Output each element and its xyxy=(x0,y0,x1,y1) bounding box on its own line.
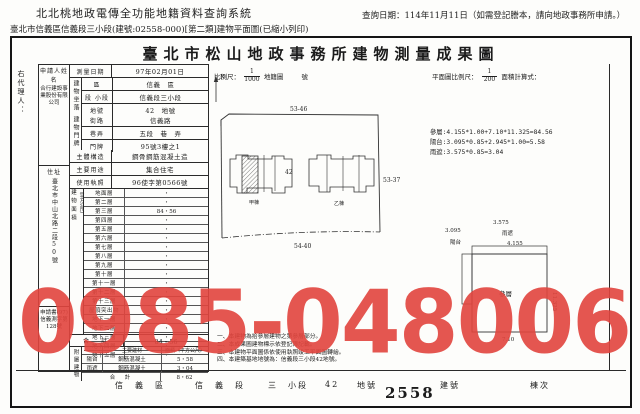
location-group: 建物坐落 區 信義 區 段 小段 信義段三小段 地號 42 地號 xyxy=(70,78,208,114)
footer-divider xyxy=(16,370,626,371)
floor-value: ・ xyxy=(125,315,208,323)
note-line: 二、本成果圖建物標示依登記簿記載。 xyxy=(217,342,602,350)
floor-label: 地下二層 xyxy=(84,324,125,332)
floor-row: 第十二層 ・ xyxy=(84,288,208,297)
footer-section: 信 義 段 xyxy=(195,380,245,391)
attachments-material-header: 主要建材 xyxy=(103,347,162,354)
boundary-bottom-label: 54-40 xyxy=(294,243,311,250)
location-row-label: 段 小段 xyxy=(82,91,113,103)
system-title: 北北桃地政電傳全功能地籍資料查詢系統 xyxy=(36,5,252,21)
floor-rows: 地面層 ・ 第二層 ・ 第三層 84・56 xyxy=(84,189,208,334)
dim-4155: 4.155 xyxy=(507,241,523,247)
usage-label: 主要用途 xyxy=(70,163,112,175)
license-value: 96使字第0566號 xyxy=(112,177,208,187)
parcel-left-edge xyxy=(221,120,222,238)
application-number-cell: 申請書(97)信義測字第128號 xyxy=(39,307,69,371)
floor-row: 地下二層 ・ xyxy=(84,324,208,333)
floor-value: ・ xyxy=(125,198,208,206)
floor-total-row: 合 計 84・56 xyxy=(70,335,208,347)
footer-building-unit: 建號 xyxy=(440,380,460,391)
floor-row: 第十三層 ・ xyxy=(84,297,208,306)
floor-row: 第二層 ・ xyxy=(84,198,208,207)
floor-label: 第十三層 xyxy=(84,297,125,305)
floor-row: 屋頂突出物 ・ xyxy=(84,306,208,315)
floor-total-value: 84・56 xyxy=(124,336,208,346)
canopy-outline xyxy=(472,246,547,254)
dim-3095: 3.095 xyxy=(445,228,461,234)
doorplate-row-label: 街路 xyxy=(82,114,113,126)
attachment-row: 陽台 鋼筋混凝土 5・58 xyxy=(82,355,208,364)
left-building-label: 甲棟 xyxy=(249,199,259,206)
floor-label: 地下一層 xyxy=(84,315,125,323)
address-cell: 住址 臺北市中山北路二段50號 xyxy=(39,166,69,307)
attachments-area-header: 面積（平方公尺） xyxy=(162,347,208,354)
doorplate-row-label: 巷弄 xyxy=(82,127,113,139)
floor-row: 第六層 ・ xyxy=(84,234,208,243)
footer-strip: 信 義 區 信 義 段 三 小段 42 地號 2558 建號 棟次 xyxy=(12,372,630,404)
floor-label: 第四層 xyxy=(84,216,125,224)
footer-district: 信 義 區 xyxy=(115,380,165,391)
floor-label: 地面層 xyxy=(84,189,125,197)
floor-label: 第十二層 xyxy=(84,288,125,296)
footer-parcel-unit: 地號 xyxy=(357,380,377,391)
license-row: 使用執照 96使字第0566號 xyxy=(70,176,208,189)
attachment-area: 5・58 xyxy=(162,355,208,363)
building-info-form: 申請人姓名 合行建設事業股份有限公司 住址 臺北市中山北路二段50號 申請書(9… xyxy=(38,64,209,372)
floor-value: ・ xyxy=(125,216,208,224)
footer-building-number: 2558 xyxy=(385,384,435,402)
footer-subsection: 三 小段 xyxy=(268,380,308,391)
floor-value: ・ xyxy=(125,252,208,260)
floor-value: ・ xyxy=(125,189,208,197)
floor-row: 第十一層 ・ xyxy=(84,279,208,288)
floor-area-axis: 建物面積 （平方公尺） xyxy=(70,189,84,334)
doorplate-row-value: 信義路 xyxy=(113,115,208,125)
location-group-label: 建物坐落 xyxy=(70,78,82,114)
survey-date-label: 測量日期 xyxy=(70,65,112,77)
form-grid: 測量日期 97年02月01日 建物坐落 區 信義 區 段 小段 信義段三小段 xyxy=(70,65,208,371)
footer-unit-label: 棟次 xyxy=(530,380,550,391)
right-divider xyxy=(609,64,610,370)
doorplate-row: 街路 信義路 xyxy=(82,114,208,127)
agent-label: 右代理人： xyxy=(16,70,26,115)
applicant-name: 合行建設事業股份有限公司 xyxy=(40,86,68,107)
dim-3575: 3.575 xyxy=(493,220,509,226)
cadastral-map-and-plan: N 53-46 53-37 54-40 42 甲棟 乙棟 xyxy=(207,64,609,370)
address-value: 臺北市中山北路二段50號 xyxy=(50,178,59,296)
doorplate-group: 建物門牌 街路 信義路 巷弄 五段 巷 弄 門牌 95號3樓之1 xyxy=(70,114,208,150)
balcony-label: 陽台 xyxy=(450,238,462,246)
floor-row: 第四層 ・ xyxy=(84,216,208,225)
floor-label: 第七層 xyxy=(84,243,125,251)
floor-label: 屋頂突出物 xyxy=(84,306,125,314)
floor-area-group-label: 建物面積 xyxy=(69,189,77,334)
application-number: 申請書(97)信義測字第128號 xyxy=(40,310,68,331)
floor-label: 第十一層 xyxy=(84,279,125,287)
usage-row: 主要用途 集合住宅 xyxy=(70,163,208,176)
survey-date-value: 97年02月01日 xyxy=(112,66,208,76)
parcel-bottom-edge xyxy=(222,232,380,238)
floor-label: 第十層 xyxy=(84,270,125,278)
land-registry-print-view: 北北桃地政電傳全功能地籍資料查詢系統 查詢日期：114年11月11日（如需登記謄… xyxy=(0,0,640,414)
floor-value: ・ xyxy=(125,270,208,278)
room-label: 參層 xyxy=(499,289,512,298)
floor-label: 第八層 xyxy=(84,252,125,260)
floor-total-label: 合 計 xyxy=(70,335,124,346)
floor-area-block: 建物面積 （平方公尺） 地面層 ・ 第二層 xyxy=(70,189,208,335)
applicant-label: 申請人姓名 xyxy=(40,66,68,84)
north-arrow-head-icon xyxy=(214,76,218,82)
floor-value: ・ xyxy=(125,288,208,296)
floor-value: 84・56 xyxy=(125,207,208,215)
floor-row: 地面層 ・ xyxy=(84,189,208,198)
survey-result-sheet: 臺北市松山地政事務所建物測量成果圖 右代理人： 申請人姓名 合行建設事業股份有限… xyxy=(10,36,632,408)
structure-value: 鋼骨鋼筋混凝土造 xyxy=(112,151,208,161)
doorplate-row: 巷弄 五段 巷 弄 xyxy=(82,127,208,140)
notes: 一、本建物為拾參層建物之第參層部分。二、本成果圖建物標示依登記簿記載。三、本建物… xyxy=(217,334,602,365)
right-building-label: 乙棟 xyxy=(334,200,344,207)
location-row: 區 信義 區 xyxy=(82,78,208,91)
document-title: 臺北市松山地政事務所建物測量成果圖 xyxy=(12,43,630,64)
floor-value: ・ xyxy=(125,279,208,287)
structure-row: 主體構造 鋼骨鋼筋混凝土造 xyxy=(70,150,208,163)
applicant-cell: 申請人姓名 合行建設事業股份有限公司 xyxy=(39,65,69,166)
floor-row: 第五層 ・ xyxy=(84,225,208,234)
footer-parcel: 42 xyxy=(325,380,339,389)
location-row-value: 信義段三小段 xyxy=(113,92,208,102)
canopy-label: 雨遮 xyxy=(502,229,514,237)
document-subtitle: 臺北市信義區信義段三小段(建號:02558-000)[第二類]建物平面圖(已縮小… xyxy=(10,23,308,35)
floor-label: 第六層 xyxy=(84,234,125,242)
query-date: 查詢日期：114年11月11日（如需登記謄本，請向地政事務所申請。） xyxy=(362,9,625,21)
balcony-outline xyxy=(462,254,472,304)
applicant-column: 申請人姓名 合行建設事業股份有限公司 住址 臺北市中山北路二段50號 申請書(9… xyxy=(39,65,70,371)
floor-value: ・ xyxy=(125,324,208,332)
dim-11325: 11.325 xyxy=(551,292,557,312)
attachments-name-header xyxy=(82,347,103,354)
doorplate-row-value: 五段 巷 弄 xyxy=(113,128,208,138)
floor-label: 第三層 xyxy=(84,207,125,215)
floor-value: ・ xyxy=(125,297,208,305)
north-label: N xyxy=(220,74,225,81)
attachment-material: 鋼筋混凝土 xyxy=(103,355,162,363)
floor-row: 第七層 ・ xyxy=(84,243,208,252)
boundary-right-label: 53-37 xyxy=(383,177,400,184)
location-row-label: 區 xyxy=(82,78,113,90)
building-outline-right xyxy=(309,155,374,192)
attachments-header-row: 主要建材 面積（平方公尺） xyxy=(82,347,208,355)
license-label: 使用執照 xyxy=(70,176,112,188)
building-outline-left xyxy=(230,155,292,193)
subject-unit-hatched xyxy=(242,156,258,193)
structure-label: 主體構造 xyxy=(70,150,112,162)
floor-row: 第三層 84・56 xyxy=(84,207,208,216)
survey-date-row: 測量日期 97年02月01日 xyxy=(70,65,208,78)
floor-label: 第九層 xyxy=(84,261,125,269)
floor-row: 第九層 ・ xyxy=(84,261,208,270)
floor-label: 第五層 xyxy=(84,225,125,233)
floor-value: ・ xyxy=(125,225,208,233)
address-label: 住址 xyxy=(40,167,68,176)
boundary-top-label: 53-46 xyxy=(290,106,307,113)
attachment-name: 陽台 xyxy=(82,355,103,363)
floor-row: 第八層 ・ xyxy=(84,252,208,261)
note-line: 四、本建築基地地號為：信義段三小段42地號。 xyxy=(217,357,602,365)
floor-value: ・ xyxy=(125,306,208,314)
floor-row: 第十層 ・ xyxy=(84,270,208,279)
usage-value: 集合住宅 xyxy=(112,164,208,174)
location-row-value: 信義 區 xyxy=(113,79,208,89)
floor-row: 地下一層 ・ xyxy=(84,315,208,324)
doorplate-group-label: 建物門牌 xyxy=(70,114,82,150)
floor-value: ・ xyxy=(125,234,208,242)
floor-value: ・ xyxy=(125,243,208,251)
note-line: 一、本建物為拾參層建物之第參層部分。 xyxy=(217,334,602,342)
floor-label: 第二層 xyxy=(84,198,125,206)
floor-value: ・ xyxy=(125,261,208,269)
location-row: 段 小段 信義段三小段 xyxy=(82,91,208,104)
